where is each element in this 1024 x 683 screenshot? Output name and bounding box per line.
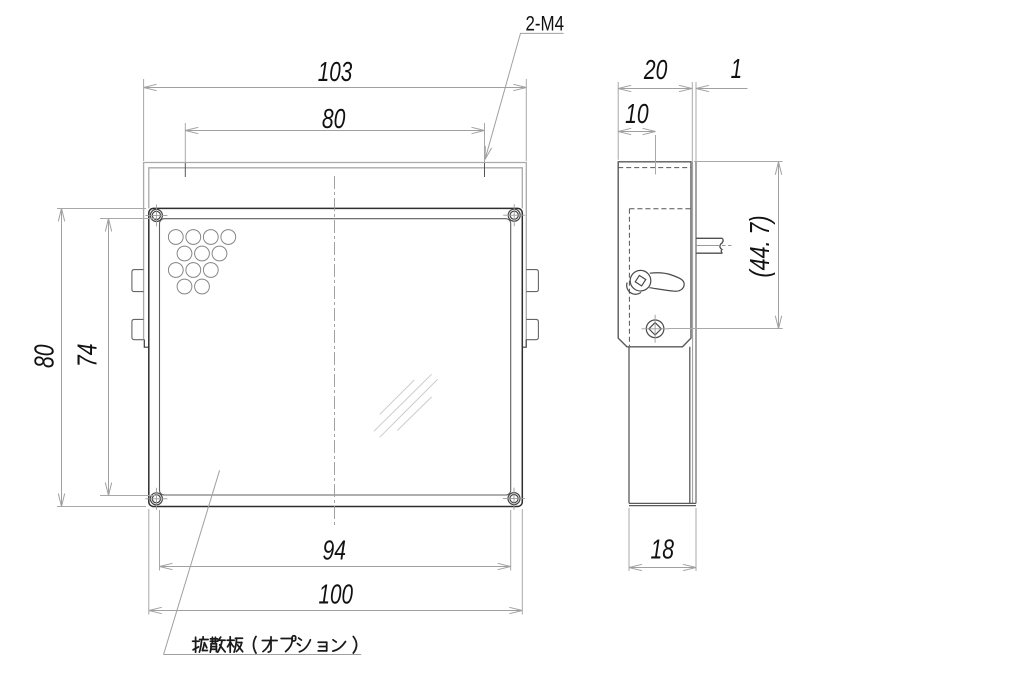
svg-text:94: 94 [323, 534, 347, 565]
svg-text:80: 80 [29, 344, 60, 368]
svg-text:2-M4: 2-M4 [526, 11, 565, 35]
svg-text:80: 80 [322, 103, 346, 134]
svg-text:100: 100 [318, 578, 353, 609]
svg-text:(44. 7): (44. 7) [744, 216, 775, 278]
svg-text:20: 20 [643, 54, 668, 85]
svg-text:18: 18 [651, 534, 675, 565]
svg-text:103: 103 [318, 56, 353, 87]
svg-text:74: 74 [71, 344, 102, 368]
svg-text:1: 1 [731, 53, 743, 84]
svg-text:10: 10 [625, 98, 649, 129]
